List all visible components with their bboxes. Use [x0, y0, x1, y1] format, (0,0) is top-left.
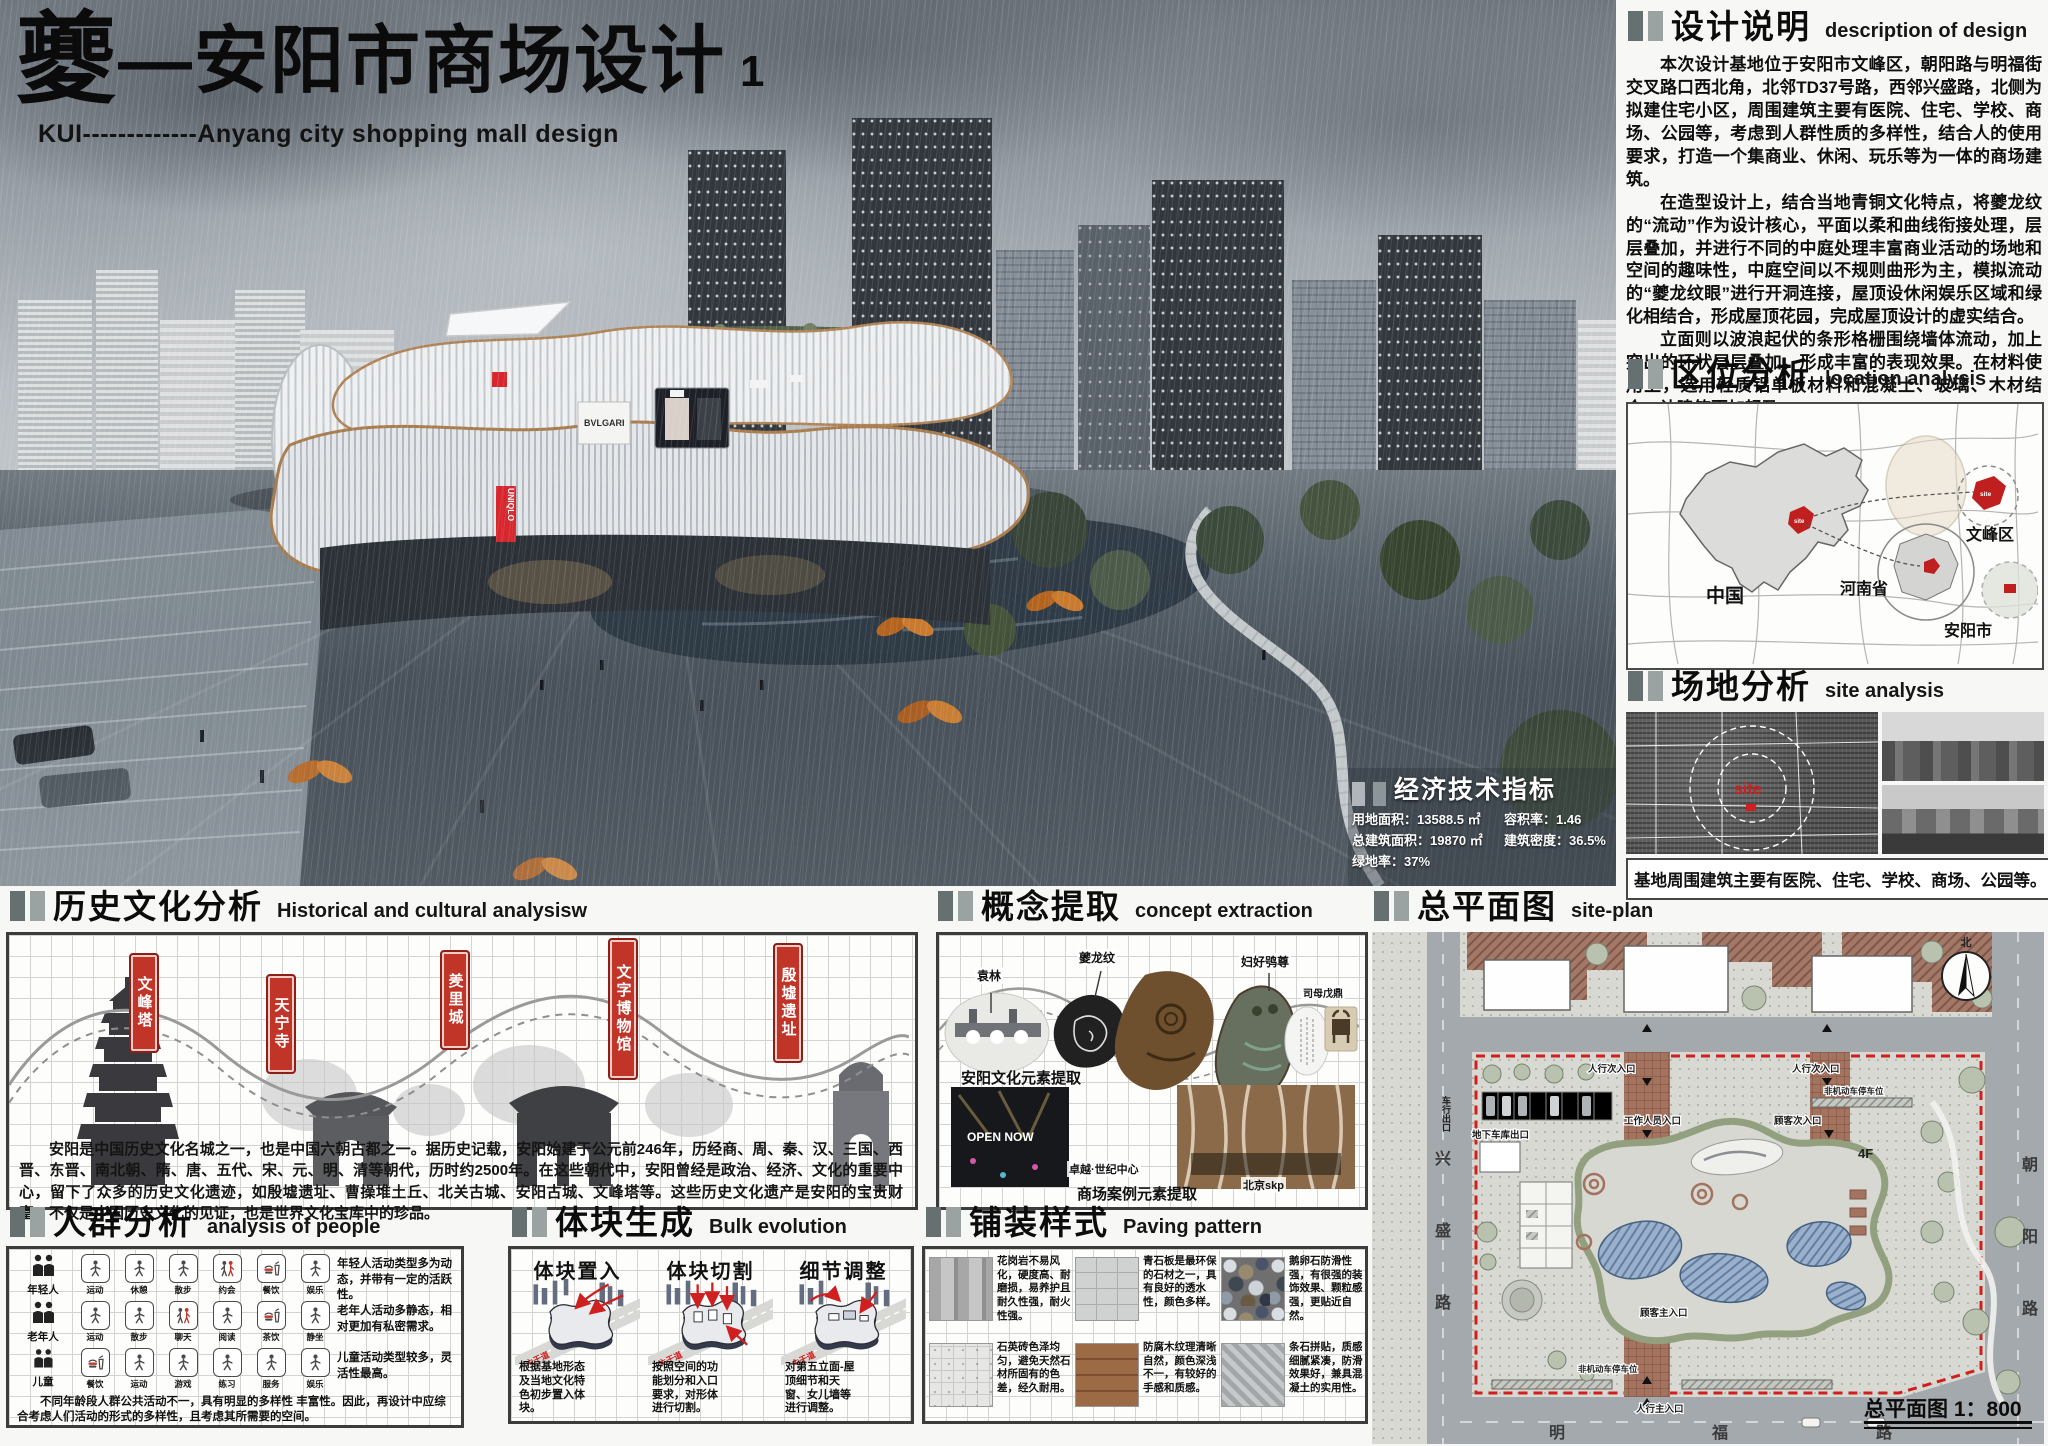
marker-square-icon [532, 1207, 547, 1237]
marker-square-icon [1648, 359, 1663, 389]
bulk-step2-diagram: 主干道 [648, 1277, 773, 1365]
bvlgari-ad-text: BVLGARI [584, 418, 625, 428]
entertainment-icon [306, 1259, 325, 1278]
svg-text:盛: 盛 [1435, 1221, 1451, 1240]
site-photo-1 [1882, 712, 2044, 781]
marker-square-icon [938, 891, 953, 921]
storefront-glow [488, 560, 612, 604]
paving-item-bluestone: 青石板是最环保的石材之一，具有良好的透水性，颜色多样。 [1073, 1251, 1219, 1337]
presentation-board: BVLGARI UNIQLO 夔—安阳市商场设计1 KUI-----------… [0, 0, 2048, 1446]
marker-square-icon [512, 1207, 527, 1237]
section-title: 历史文化分析 [53, 890, 263, 923]
residential-block [1460, 932, 1992, 1017]
couple-icon [218, 1259, 237, 1278]
section-header-history: 历史文化分析 Historical and cultural analysisw [10, 890, 587, 923]
section-title: 铺装样式 [969, 1206, 1109, 1239]
service-icon [262, 1353, 281, 1372]
history-tag: 文峰塔 [129, 953, 159, 1053]
marker-square-icon [1648, 671, 1663, 701]
label-kui-dragon: 夔龙纹 [1077, 949, 1117, 966]
marker-square-icon [10, 891, 25, 921]
site-analysis-caption: 基地周围建筑主要有医院、住宅、学校、商场、公园等。 [1626, 858, 2048, 900]
satellite-site-label: site [1734, 781, 1762, 798]
sport-icon [86, 1259, 105, 1278]
section-header-people: 人群分析 analysis of people [10, 1206, 380, 1239]
bulk-step3-diagram: 主干道 [781, 1277, 906, 1365]
site-photo-2 [1882, 785, 2044, 854]
section-subtitle: Historical and cultural analysisw [271, 901, 587, 923]
chat-icon [174, 1306, 193, 1325]
marker-square-icon [10, 1207, 25, 1237]
paving-panel: 花岗岩不易风化，硬度高、耐磨损，易养护且耐久性强，耐火性强。 青石板是最环保的石… [922, 1246, 1368, 1424]
marker-square-icon [30, 891, 45, 921]
board-title-en: KUI-------------Anyang city shopping mal… [38, 120, 766, 149]
activity-game: 游戏 [161, 1348, 205, 1390]
food-icon [262, 1259, 281, 1278]
label-anyang: 安阳市 [1944, 621, 1992, 640]
svg-text:总平面图 1：800: 总平面图 1：800 [1864, 1397, 2022, 1421]
sport-icon [86, 1306, 105, 1325]
step-description: 根据基地形态及当地文化特色初步置入体块。 [519, 1361, 595, 1416]
section-subtitle: concept extraction [1129, 901, 1313, 923]
section-subtitle: description of design [1819, 21, 2027, 43]
label-car-exit: 车行出口 [1441, 1095, 1452, 1133]
svg-text:site: site [1980, 491, 1992, 498]
step-description: 按照空间的功能划分和入口要求，对形体进行切割。 [652, 1361, 728, 1416]
section-subtitle: analysis of people [201, 1217, 380, 1239]
label-customer-main: 顾客主入口 [1640, 1307, 1688, 1319]
section-subtitle: Paving pattern [1117, 1217, 1262, 1239]
inscription-blob [1285, 1007, 1329, 1075]
rest-icon [130, 1259, 149, 1278]
walk-icon [174, 1259, 193, 1278]
activity-walk: 散步 [117, 1301, 161, 1343]
label-garage-exit: 地下车库出口 [1472, 1129, 1529, 1141]
activity-date: 约会 [205, 1254, 249, 1296]
marker-square-icon [926, 1207, 941, 1237]
sitting-icon [306, 1306, 325, 1325]
section-title: 区位分析 [1671, 358, 1811, 391]
marker-square-icon [1628, 671, 1643, 701]
billboard-figure [697, 398, 721, 440]
paving-item-wood: 防腐木纹理清晰自然，颜色深浅不一，有较好的手感和质感。 [1073, 1337, 1219, 1423]
activity-chat: 聊天 [161, 1301, 205, 1343]
granite-swatch [929, 1257, 993, 1321]
detail-site-square [2004, 584, 2016, 593]
pebble-swatch [1221, 1257, 1285, 1321]
history-tag: 殷墟遗址 [773, 943, 803, 1063]
people-row-children: 儿童 餐饮 运动 游戏 练习 服务 娱乐 儿童活动类型较多，灵活性最高。 [13, 1348, 457, 1394]
bronze-ding-photo [1325, 1007, 1357, 1051]
bike-parking-strip [1812, 1098, 1912, 1107]
activity-tea: 茶饮 [249, 1301, 293, 1343]
label-floor-4f: 4F [1858, 1146, 1873, 1161]
bulk-step-3: 细节调整 主干道 [777, 1249, 910, 1421]
bluestone-swatch [1075, 1257, 1139, 1321]
section-subtitle: site analysis [1819, 681, 1944, 703]
paving-desc: 石英砖色泽均匀，避免天然石材所固有的色差，经久耐用。 [997, 1341, 1071, 1396]
section-header-location-analysis: 区位分析 location analysis [1628, 358, 1986, 391]
main-render-image: BVLGARI UNIQLO 夔—安阳市商场设计1 KUI-----------… [0, 0, 1616, 886]
people-summary: 不同年龄段人群公共活动不一，具有明显的多样性 丰富性。因此，再设计中应综合考虑人… [17, 1395, 451, 1425]
group-young: 年轻人 [13, 1254, 73, 1297]
site-square [1746, 804, 1756, 811]
mall-building-render: BVLGARI UNIQLO [250, 230, 1050, 690]
label-beijing-skp: 北京skp [1241, 1177, 1286, 1193]
annex-building [1520, 1182, 1572, 1268]
activity-entertainment: 娱乐 [293, 1348, 337, 1390]
bulk-step-2: 体块切割 主干道 [644, 1249, 777, 1421]
people-panel: 年轻人 运动 休憩 散步 约会 餐饮 娱乐 年轻人活动类型多为动态，并带有一定的… [6, 1246, 464, 1428]
activity-sport: 运动 [73, 1254, 117, 1296]
marker-square-icon [1374, 891, 1389, 921]
caption-culture-extraction: 安阳文化元素提取 [961, 1067, 1081, 1088]
marker-square-icon [958, 891, 973, 921]
section-title: 体块生成 [555, 1206, 695, 1239]
quartz-swatch [929, 1343, 993, 1407]
svg-text:车行出口: 车行出口 [1441, 1095, 1452, 1133]
marker-square-icon [1394, 891, 1409, 921]
bulk-step1-diagram: 主干道 [515, 1277, 640, 1365]
svg-text:路: 路 [1435, 1293, 1452, 1312]
marker-square-icon [1628, 11, 1643, 41]
svg-text:北: 北 [1961, 935, 1972, 949]
round-plaza-inner [1510, 1288, 1534, 1312]
economic-indicators: 经济技术指标 用地面积：13588.5 ㎡ 容积率：1.46 总建筑面积：198… [1348, 768, 1616, 886]
label-fuhao-owl: 妇好鸮尊 [1239, 953, 1291, 970]
svg-text:明: 明 [1549, 1424, 1565, 1442]
econ-far: 容积率：1.46 [1504, 809, 1604, 828]
mass-top [815, 1300, 878, 1344]
note-young: 年轻人活动类型多为动态，并带有一定的活跃性。 [337, 1254, 455, 1304]
bronze-axe-blob [1115, 971, 1214, 1090]
bike-parking-strip [1682, 1380, 1832, 1389]
board-title-cn: 夔—安阳市商场设计1 [16, 10, 766, 110]
board-title: 夔—安阳市商场设计1 KUI-------------Anyang city s… [16, 10, 766, 149]
svg-text:路: 路 [2022, 1299, 2039, 1318]
activity-sitting: 静坐 [293, 1301, 337, 1343]
roof-equipment [1850, 1190, 1866, 1235]
section-header-concept: 概念提取 concept extraction [938, 890, 1313, 923]
label-leader-line [1095, 971, 1101, 997]
open-now-text: OPEN NOW [967, 1130, 1034, 1144]
surface-parking [1482, 1092, 1612, 1120]
activity-sport: 运动 [73, 1301, 117, 1343]
group-elderly: 老年人 [13, 1301, 73, 1344]
section-header-siteplan: 总平面图 site-plan [1374, 890, 1653, 923]
children-icon [30, 1348, 56, 1368]
svg-text:兴: 兴 [1435, 1150, 1451, 1168]
svg-text:阳: 阳 [2022, 1228, 2038, 1246]
paving-item-strip-stone: 条石拼贴，质感细腻紧凑，防滑效果好，兼具混凝土的实用性。 [1219, 1337, 1365, 1423]
activity-reading: 阅读 [205, 1301, 249, 1343]
section-header-bulk: 体块生成 Bulk evolution [512, 1206, 847, 1239]
china-map-silhouette [1680, 444, 1868, 592]
bulk-step-1: 体块置入 主干道 根据基地形态及当地文化特色初步置入体块。 [511, 1249, 644, 1421]
section-title: 人群分析 [53, 1206, 193, 1239]
wood-swatch [1075, 1343, 1139, 1407]
uniqlo-sign-text: UNIQLO [506, 488, 516, 521]
paving-desc: 青石板是最环保的石材之一，具有良好的透水性，颜色多样。 [1143, 1255, 1217, 1310]
label-bike-parking-bottom: 非机动车停车位 [1578, 1364, 1638, 1374]
label-ped-main: 人行主入口 [1636, 1403, 1684, 1415]
dark-highrise-tower [1152, 180, 1284, 480]
activity-rest: 休憩 [117, 1254, 161, 1296]
activity-service: 服务 [249, 1348, 293, 1390]
food-icon [86, 1353, 105, 1372]
bulk-panel: 体块置入 主干道 根据基地形态及当地文化特色初步置入体块。 体块切 [508, 1246, 914, 1424]
garage-exit [1480, 1142, 1520, 1172]
mass-top [549, 1300, 612, 1344]
section-title: 设计说明 [1671, 10, 1811, 43]
econ-land-area: 用地面积：13588.5 ㎡ [1352, 809, 1504, 828]
kui-dragon-pattern-blob [1054, 995, 1125, 1068]
step-description: 对第五立面-屋顶细节和天窗、女儿墙等进行调整。 [785, 1361, 861, 1416]
description-paragraph: 本次设计基地位于安阳市文峰区，朝阳路与明福街交叉路口西北角，北邻TD37号路，西… [1626, 54, 2042, 192]
background-tower [1078, 225, 1150, 495]
econ-title: 经济技术指标 [1394, 770, 1556, 806]
marker-square-icon [1648, 11, 1663, 41]
history-tag: 天宁寺 [266, 974, 296, 1074]
label-ding: 司母戊鼎 [1301, 985, 1345, 1000]
label-ped-secondary-1: 人行次入口 [1588, 1063, 1636, 1075]
marker-square-icon [1628, 359, 1643, 389]
svg-text:site: site [1794, 519, 1805, 525]
activity-dining: 餐饮 [73, 1348, 117, 1390]
satellite-image: site [1626, 712, 1878, 854]
caption-case-extraction: 商场案例元素提取 [1077, 1183, 1197, 1204]
paving-item-granite: 花岗岩不易风化，硬度高、耐磨损，易养护且耐久性强，耐火性强。 [927, 1251, 1073, 1337]
paving-desc: 花岗岩不易风化，硬度高、耐磨损，易养护且耐久性强，耐火性强。 [997, 1255, 1071, 1323]
people-row-elderly: 老年人 运动 散步 聊天 阅读 茶饮 静坐 老年人活动多静态，相对更加有私密需求… [13, 1301, 457, 1347]
section-header-site-analysis: 场地分析 site analysis [1628, 670, 1944, 703]
section-subtitle: site-plan [1565, 901, 1653, 923]
section-subtitle: location analysis [1819, 369, 1986, 391]
concept-panel: OPEN NOW 袁林 夔龙纹 妇好鸮尊 司母戊鼎 安阳文化元素提取 卓越·世纪… [936, 932, 1368, 1210]
title-first-char: 夔 [16, 4, 118, 116]
section-subtitle: Bulk evolution [703, 1217, 847, 1239]
history-tag: 羑里城 [440, 950, 470, 1050]
label-staff-entry: 工作人员入口 [1624, 1115, 1681, 1127]
billboard-figure [665, 398, 689, 440]
wenfeng-site-marker: site [1972, 476, 2006, 510]
note-elderly: 老年人活动多静态，相对更加有私密需求。 [337, 1301, 455, 1335]
label-zhuoyue-center: 卓越·世纪中心 [1067, 1161, 1141, 1177]
section-header-design-description: 设计说明 description of design [1628, 10, 2027, 43]
section-title: 总平面图 [1417, 890, 1557, 923]
sheet-number: 1 [726, 47, 766, 96]
yuanlin-photo-blob [945, 993, 1049, 1073]
description-paragraph: 在造型设计上，结合当地青铜文化特点，将夔龙纹的“流动”作为设计核心，平面以柔和曲… [1626, 192, 2042, 330]
tea-icon [262, 1306, 281, 1325]
activity-entertainment: 娱乐 [293, 1254, 337, 1296]
econ-green-ratio: 绿地率：37% [1352, 851, 1504, 870]
section-header-paving: 铺装样式 Paving pattern [926, 1206, 1262, 1239]
roof-canopy [446, 302, 570, 336]
label-henan: 河南省 [1840, 579, 1888, 598]
entertainment-icon [306, 1353, 325, 1372]
west-sidewalk [1372, 932, 1427, 1444]
elderly-people-icon [28, 1301, 58, 1323]
skp-facade-photo [1177, 1085, 1355, 1189]
paving-desc: 防腐木纹理清晰自然，颜色深浅不一，有较好的手感和质感。 [1143, 1341, 1217, 1396]
label-customer-secondary: 顾客次入口 [1774, 1115, 1822, 1127]
walk-icon [130, 1306, 149, 1325]
marker-square-icon [30, 1207, 45, 1237]
svg-text:朝: 朝 [2022, 1155, 2038, 1174]
cycling-icon [218, 1353, 237, 1372]
paving-desc: 鹅卵石防滑性强，有很强的装饰效果、颗粒感强，更贴近自然。 [1289, 1255, 1363, 1323]
activity-dining: 餐饮 [249, 1254, 293, 1296]
group-children: 儿童 [13, 1348, 73, 1389]
label-yuanlin: 袁林 [975, 967, 1003, 984]
section-title: 概念提取 [981, 890, 1121, 923]
label-china: 中国 [1706, 584, 1744, 607]
bike-parking-strip [1492, 1380, 1612, 1389]
activity-practice: 练习 [205, 1348, 249, 1390]
marker-square-icon [1373, 782, 1386, 806]
site-analysis-images: site [1626, 712, 2044, 854]
paving-desc: 条石拼贴，质感细腻紧凑，防滑效果好，兼具混凝土的实用性。 [1289, 1341, 1363, 1396]
sport-icon [130, 1353, 149, 1372]
section-title: 场地分析 [1671, 670, 1811, 703]
marker-square-icon [1352, 782, 1365, 806]
marker-square-icon [946, 1207, 961, 1237]
site-plan-drawing: 北 人行次入口 人行次入口 地下车库出口 工作人员入口 顾客次入口 非机动车停车… [1372, 932, 2044, 1444]
storefront-logo [492, 372, 507, 387]
paving-item-pebble: 鹅卵石防滑性强，有很强的装饰效果、颗粒感强，更贴近自然。 [1219, 1251, 1365, 1337]
label-wenfeng: 文峰区 [1966, 525, 2014, 544]
activity-walk: 散步 [161, 1254, 205, 1296]
econ-density: 建筑密度：36.5% [1504, 830, 1604, 849]
activity-sport: 运动 [117, 1348, 161, 1390]
history-panel: 文峰塔 天宁寺 羑里城 文字博物馆 殷墟遗址 安阳是中国历史文化名城之一，也是中… [6, 932, 918, 1210]
econ-gfa: 总建筑面积：19870 ㎡ [1352, 830, 1504, 849]
reading-icon [218, 1306, 237, 1325]
paving-item-quartz: 石英砖色泽均匀，避免天然石材所固有的色差，经久耐用。 [927, 1337, 1073, 1423]
history-tag: 文字博物馆 [608, 938, 638, 1080]
young-people-icon [28, 1254, 58, 1276]
storefront-glow [715, 555, 825, 595]
game-icon [174, 1353, 193, 1372]
open-now-photo: OPEN NOW [951, 1087, 1069, 1187]
strip-stone-swatch [1221, 1343, 1285, 1407]
mass-top [682, 1300, 745, 1344]
svg-text:路: 路 [1876, 1423, 1893, 1442]
region-ellipse [1886, 436, 1966, 536]
label-bike-parking-top: 非机动车停车位 [1824, 1086, 1884, 1096]
people-row-young: 年轻人 运动 休憩 散步 约会 餐饮 娱乐 年轻人活动类型多为动态，并带有一定的… [13, 1254, 457, 1300]
location-analysis-map: site site 中国 河南省 文峰区 安阳市 [1626, 402, 2044, 670]
label-ped-secondary-2: 人行次入口 [1792, 1063, 1840, 1075]
glass-storefront [320, 535, 990, 630]
svg-text:福: 福 [1711, 1423, 1728, 1442]
car [1802, 1418, 1820, 1427]
note-children: 儿童活动类型较多，灵活性最高。 [337, 1348, 455, 1382]
